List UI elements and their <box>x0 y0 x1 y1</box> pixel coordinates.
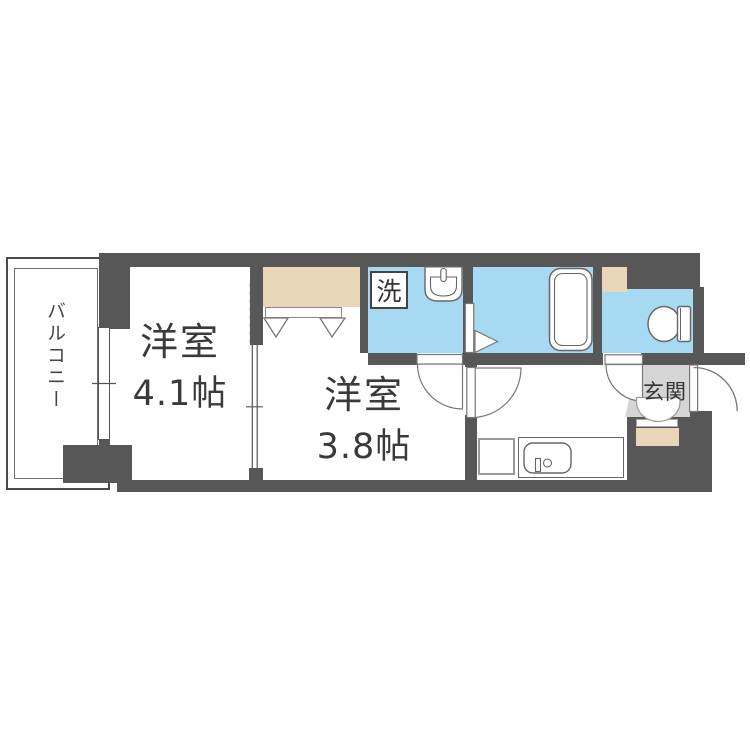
entrance-door-swing <box>690 365 738 412</box>
kitchen-door-swing <box>467 368 521 418</box>
room-38-area: 3.8帖 <box>263 428 465 467</box>
floor-plan: 洗 <box>0 0 750 750</box>
entrance-step <box>636 419 678 427</box>
wall-hall-b <box>462 353 603 365</box>
wall-room-divider-bottom <box>249 468 263 482</box>
bathtub-icon <box>548 267 594 352</box>
entrance-label: 玄関 <box>639 376 691 406</box>
room-38-name: 洋室 <box>263 374 465 417</box>
faucet-icon <box>536 459 541 472</box>
balcony-label: バルコニー <box>42 301 69 446</box>
closet-door-track <box>265 307 342 318</box>
window <box>98 327 110 440</box>
washer-label: 洗 <box>376 272 401 308</box>
wall-left-post <box>99 253 130 329</box>
wall-washroom-bathroom <box>463 267 473 353</box>
shoe-cabinet <box>636 428 679 446</box>
kitchen-appliance-space <box>478 438 515 475</box>
room-38-label: 洋室 3.8帖 <box>263 374 465 467</box>
wall-hall-c <box>641 353 745 365</box>
wash-basin-icon <box>423 266 464 303</box>
wall-kitchen-lower <box>465 415 477 480</box>
wall-bottom <box>117 480 712 492</box>
room-41-label: 洋室 4.1帖 <box>110 321 250 414</box>
wall-right-top <box>693 287 704 353</box>
room-41-area: 4.1帖 <box>110 375 250 414</box>
wall-top <box>99 253 700 267</box>
wall-kitchen-post <box>465 353 477 367</box>
closet <box>263 267 360 307</box>
wall-bottom-left-block <box>63 445 132 483</box>
room-41-name: 洋室 <box>110 321 250 364</box>
wall-closet-washroom <box>360 267 368 353</box>
wall-bathroom-toilet <box>593 265 602 353</box>
kitchen-sink-icon <box>523 442 575 476</box>
wall-hall-a <box>368 353 417 365</box>
wall-room-divider-top <box>250 267 263 345</box>
toilet-icon <box>645 302 693 346</box>
storage-nook <box>602 267 627 292</box>
closet-hanger-icon <box>264 318 345 337</box>
washing-machine-space: 洗 <box>370 271 408 309</box>
